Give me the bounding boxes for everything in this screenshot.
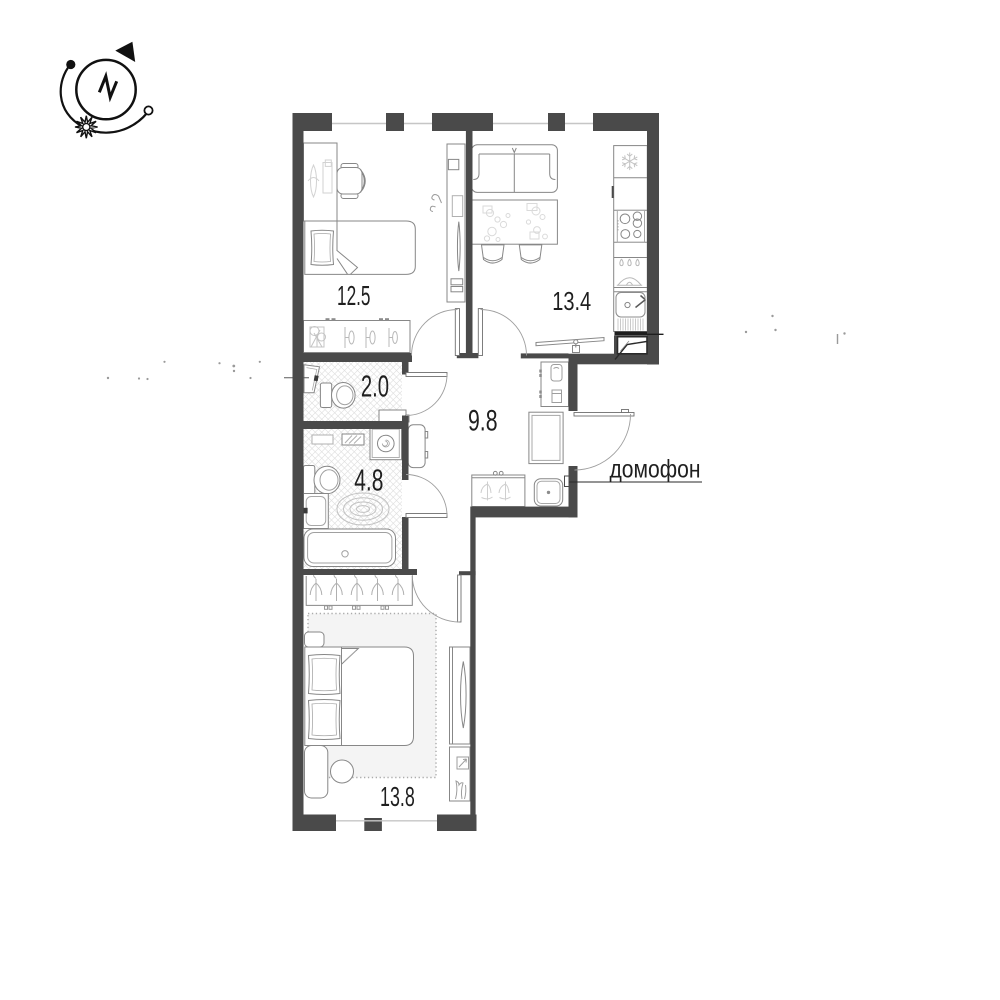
svg-text:9.8: 9.8: [468, 405, 498, 438]
svg-text:13.4: 13.4: [552, 286, 591, 316]
svg-text:4.8: 4.8: [354, 463, 383, 498]
svg-text:2.0: 2.0: [361, 369, 389, 404]
svg-text:домофон: домофон: [610, 456, 701, 484]
svg-text:13.8: 13.8: [380, 781, 415, 812]
svg-text:12.5: 12.5: [337, 280, 371, 311]
